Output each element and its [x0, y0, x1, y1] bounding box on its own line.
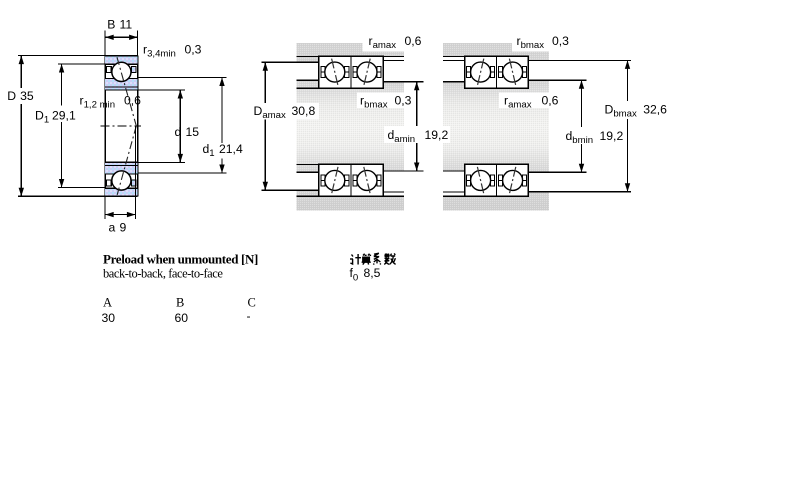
svg-text:-: -	[247, 309, 251, 323]
svg-text:B: B	[176, 296, 184, 310]
svg-text:60: 60	[175, 311, 189, 325]
svg-text:back-to-back, face-to-face: back-to-back, face-to-face	[103, 267, 223, 281]
svg-text:D35: D35	[7, 89, 34, 103]
svg-text:B11: B11	[107, 18, 132, 32]
svg-text:C: C	[248, 296, 256, 310]
svg-text:30: 30	[102, 311, 116, 325]
svg-text:Preload when unmounted [N]: Preload when unmounted [N]	[103, 252, 258, 267]
svg-text:d15: d15	[175, 125, 200, 139]
svg-text:A: A	[103, 296, 112, 310]
